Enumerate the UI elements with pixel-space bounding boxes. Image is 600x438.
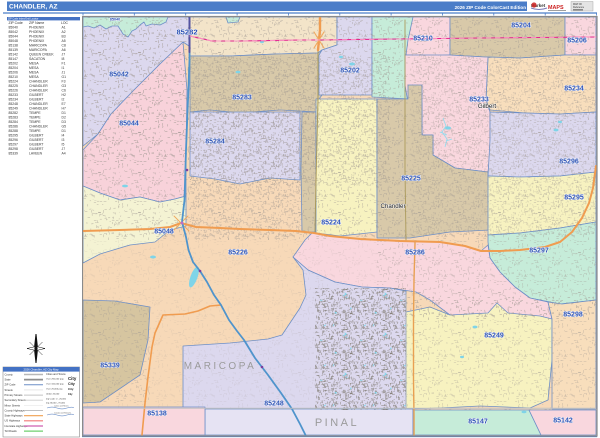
svg-text:J7: J7 <box>62 147 66 151</box>
svg-text:MESA: MESA <box>29 66 39 70</box>
svg-text:G5: G5 <box>62 124 67 128</box>
svg-text:CHANDLER: CHANDLER <box>29 88 48 92</box>
svg-text:85283: 85283 <box>232 94 252 101</box>
svg-text:85339: 85339 <box>100 362 120 369</box>
svg-text:Streets: Streets <box>5 388 14 392</box>
svg-text:85297: 85297 <box>529 247 549 254</box>
svg-text:G1: G1 <box>62 75 67 79</box>
svg-text:CHANDLER: CHANDLER <box>29 102 48 106</box>
svg-text:85210: 85210 <box>9 75 19 79</box>
svg-text:County Highways: County Highways <box>5 408 26 412</box>
svg-text:85296: 85296 <box>559 158 579 165</box>
svg-text:I5: I5 <box>62 142 65 146</box>
svg-text:85283: 85283 <box>9 115 19 119</box>
svg-text:85286: 85286 <box>9 124 19 128</box>
svg-text:85249: 85249 <box>484 332 504 339</box>
svg-text:C8: C8 <box>62 43 66 47</box>
svg-text:85284: 85284 <box>205 138 225 145</box>
svg-text:85202: 85202 <box>9 61 19 65</box>
svg-text:E7: E7 <box>62 102 66 106</box>
svg-text:H7: H7 <box>62 106 66 110</box>
svg-text:85142: 85142 <box>553 417 573 424</box>
svg-text:Reference: Reference <box>573 6 585 9</box>
svg-text:85210: 85210 <box>413 35 433 42</box>
svg-text:85295: 85295 <box>9 133 19 137</box>
svg-text:85204: 85204 <box>9 66 19 70</box>
svg-text:85139: 85139 <box>9 48 19 52</box>
svg-text:85233: 85233 <box>9 93 19 97</box>
svg-text:ZIP Name: ZIP Name <box>29 21 44 25</box>
svg-text:85040: 85040 <box>9 25 19 29</box>
svg-text:MESA: MESA <box>29 70 39 74</box>
svg-text:85226: 85226 <box>9 88 19 92</box>
svg-text:ZIP Code: ZIP Code <box>9 21 23 25</box>
svg-text:LOC: LOC <box>61 21 69 25</box>
svg-text:GILBERT: GILBERT <box>29 138 43 142</box>
svg-text:2026 ZIP Code ColorCast Editio: 2026 ZIP Code ColorCast Edition <box>455 5 527 10</box>
svg-text:City: City <box>68 393 73 396</box>
svg-text:I8: I8 <box>62 57 65 61</box>
svg-text:85224: 85224 <box>321 219 341 226</box>
svg-text:CHANDLER, AZ: CHANDLER, AZ <box>9 3 58 10</box>
svg-text:CHANDLER: CHANDLER <box>29 106 48 110</box>
svg-text:85249: 85249 <box>9 106 19 110</box>
svg-text:85226: 85226 <box>228 249 248 256</box>
svg-text:SACATON: SACATON <box>29 57 46 61</box>
svg-text:85282: 85282 <box>9 111 19 115</box>
svg-text:Zip Code: 0 - 25,000: Zip Code: 0 - 25,000 <box>46 399 67 401</box>
svg-text:Cities and Towns: Cities and Towns <box>46 372 66 376</box>
svg-text:85248: 85248 <box>264 400 284 407</box>
svg-text:Toll Roads: Toll Roads <box>5 429 18 433</box>
svg-text:QUEEN CREEK: QUEEN CREEK <box>29 52 54 56</box>
svg-text:J7: J7 <box>62 52 66 56</box>
svg-text:85234: 85234 <box>564 85 584 92</box>
svg-text:2026 Chandler, AZ City Map: 2026 Chandler, AZ City Map <box>24 368 59 372</box>
svg-text:Primary Streets: Primary Streets <box>5 393 24 397</box>
svg-text:PHOENIX: PHOENIX <box>29 25 45 29</box>
svg-text:CHANDLER: CHANDLER <box>29 124 48 128</box>
svg-text:85202: 85202 <box>340 67 360 74</box>
svg-text:City: City <box>68 387 74 391</box>
svg-text:85044: 85044 <box>119 120 139 127</box>
svg-text:85142: 85142 <box>9 52 19 56</box>
svg-text:US Highways: US Highways <box>5 419 21 423</box>
svg-text:85206: 85206 <box>9 70 19 74</box>
svg-text:85286: 85286 <box>405 249 425 256</box>
svg-text:G3: G3 <box>62 84 67 88</box>
svg-text:MARICOPA: MARICOPA <box>29 48 48 52</box>
svg-text:City: City <box>68 376 77 381</box>
svg-text:85206: 85206 <box>567 37 587 44</box>
svg-text:TEMPE: TEMPE <box>29 111 41 115</box>
svg-text:85288: 85288 <box>9 129 19 133</box>
svg-text:85138: 85138 <box>147 410 167 417</box>
svg-text:PHOENIX: PHOENIX <box>29 39 45 43</box>
svg-text:CHANDLER: CHANDLER <box>29 84 48 88</box>
svg-text:F1: F1 <box>62 61 66 65</box>
svg-text:City: City <box>68 382 75 386</box>
svg-text:85040: 85040 <box>110 17 121 21</box>
svg-text:85138: 85138 <box>9 43 19 47</box>
svg-text:85044: 85044 <box>9 34 19 38</box>
svg-text:D1: D1 <box>62 111 66 115</box>
svg-text:GILBERT: GILBERT <box>29 133 43 137</box>
svg-text:TEMPE: TEMPE <box>29 120 41 124</box>
svg-text:D2: D2 <box>62 115 66 119</box>
svg-text:85339: 85339 <box>9 151 19 155</box>
svg-text:PHOENIX: PHOENIX <box>29 34 45 38</box>
svg-text:MESA: MESA <box>29 61 39 65</box>
svg-text:85248: 85248 <box>9 102 19 106</box>
svg-text:D3: D3 <box>62 120 66 124</box>
svg-text:Secondary Streets: Secondary Streets <box>5 398 27 402</box>
svg-text:Minor Streets: Minor Streets <box>5 403 21 407</box>
svg-text:CHANDLER: CHANDLER <box>29 79 48 83</box>
svg-text:I4: I4 <box>62 133 65 137</box>
svg-text:85225: 85225 <box>9 84 19 88</box>
svg-text:State: State <box>5 378 12 382</box>
svg-text:PHOENIX: PHOENIX <box>29 30 45 34</box>
svg-text:TEMPE: TEMPE <box>29 129 41 133</box>
svg-text:A4: A4 <box>62 151 66 155</box>
svg-text:A2: A2 <box>62 30 66 34</box>
svg-text:F3: F3 <box>62 79 66 83</box>
svg-text:85296: 85296 <box>9 138 19 142</box>
svg-text:85282: 85282 <box>176 28 197 37</box>
svg-text:State Highways: State Highways <box>5 414 24 418</box>
svg-text:LAVEEN: LAVEEN <box>29 151 43 155</box>
svg-text:Zip 25,000 - 70,000: Zip 25,000 - 70,000 <box>46 403 66 405</box>
svg-text:Lakes and Rivers: Lakes and Rivers <box>54 405 69 408</box>
svg-text:D1: D1 <box>62 129 66 133</box>
svg-text:85234: 85234 <box>9 97 19 101</box>
svg-text:85147: 85147 <box>468 418 488 425</box>
svg-text:GILBERT: GILBERT <box>29 97 43 101</box>
svg-text:GILBERT: GILBERT <box>29 142 43 146</box>
svg-text:A6: A6 <box>62 48 66 52</box>
svg-text:Under 25,000: Under 25,000 <box>46 393 60 396</box>
svg-text:85295: 85295 <box>564 194 584 201</box>
svg-text:A5: A5 <box>62 39 66 43</box>
svg-text:85298: 85298 <box>9 147 19 151</box>
svg-text:85042: 85042 <box>9 30 19 34</box>
svg-text:GILBERT: GILBERT <box>29 147 43 151</box>
svg-text:85204: 85204 <box>511 22 531 29</box>
svg-text:A1: A1 <box>62 25 66 29</box>
svg-text:85147: 85147 <box>9 57 19 61</box>
svg-text:85297: 85297 <box>9 142 19 146</box>
svg-text:H2: H2 <box>62 93 66 97</box>
svg-text:County: County <box>5 372 14 376</box>
svg-text:I3: I3 <box>62 138 65 142</box>
svg-text:Canals and Streams: Canals and Streams <box>54 412 71 415</box>
svg-text:85048: 85048 <box>9 39 19 43</box>
svg-text:MARICOPA: MARICOPA <box>184 361 257 372</box>
svg-text:I2: I2 <box>62 97 65 101</box>
svg-text:85048: 85048 <box>154 228 174 235</box>
svg-text:Over 100,000 pop.: Over 100,000 pop. <box>46 383 65 386</box>
svg-text:MARICOPA: MARICOPA <box>29 43 48 47</box>
svg-text:ZIP Code: ZIP Code <box>5 383 16 387</box>
svg-text:85042: 85042 <box>109 71 129 78</box>
svg-text:85225: 85225 <box>401 175 421 182</box>
svg-text:Chandler: Chandler <box>380 203 405 210</box>
svg-text:GILBERT: GILBERT <box>29 93 43 97</box>
svg-text:B3: B3 <box>62 34 66 38</box>
svg-text:MESA: MESA <box>29 75 39 79</box>
svg-text:C6: C6 <box>62 88 66 92</box>
svg-text:Gilbert: Gilbert <box>478 103 497 110</box>
svg-text:PINAL: PINAL <box>315 417 359 429</box>
svg-text:I1: I1 <box>62 66 65 70</box>
svg-text:J1: J1 <box>62 70 66 74</box>
svg-text:85284: 85284 <box>9 120 19 124</box>
svg-text:85224: 85224 <box>9 79 19 83</box>
svg-text:Over 25,000 pop.: Over 25,000 pop. <box>46 388 63 391</box>
svg-text:Over 250,000 pop.: Over 250,000 pop. <box>46 378 65 381</box>
svg-text:85298: 85298 <box>563 311 583 318</box>
svg-text:TEMPE: TEMPE <box>29 115 41 119</box>
